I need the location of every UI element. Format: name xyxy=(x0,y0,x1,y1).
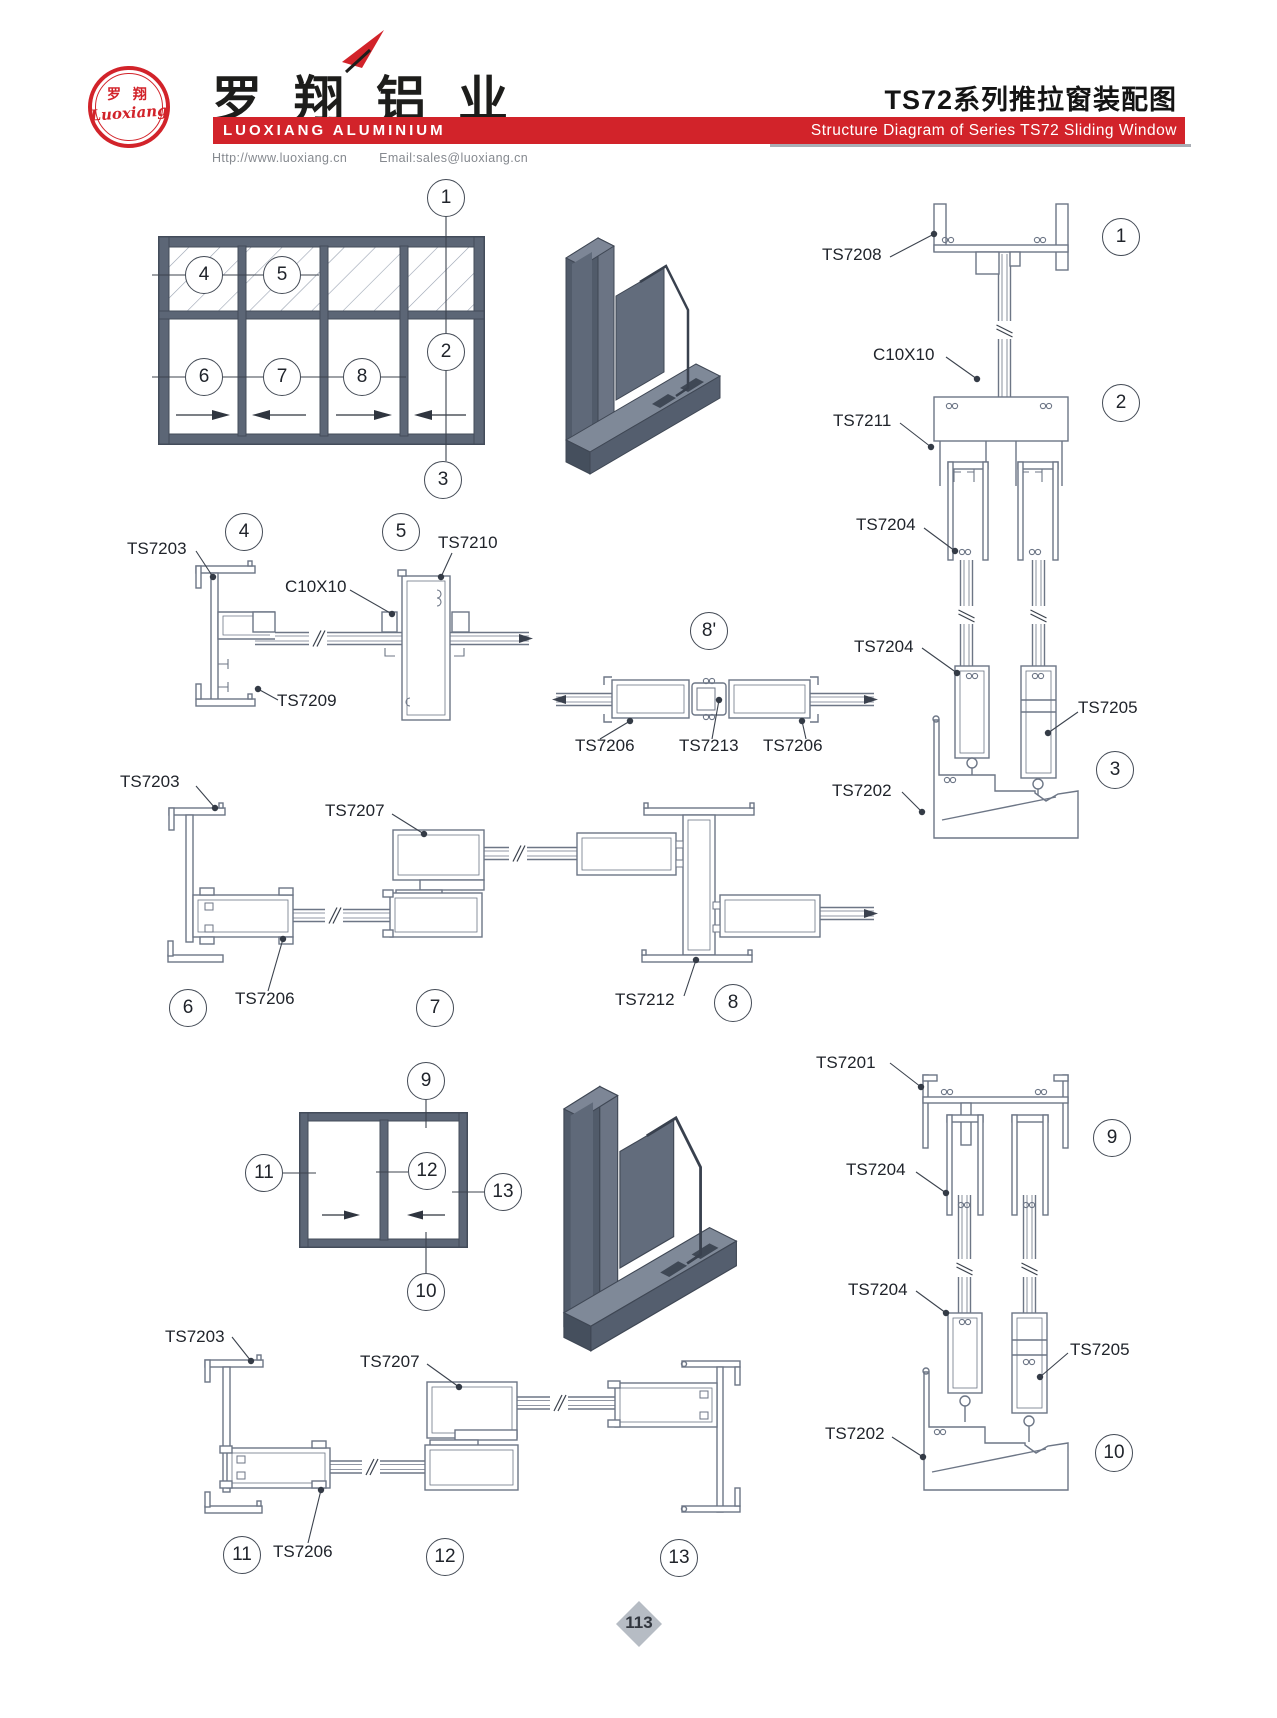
vertical-section-top-right xyxy=(933,204,1078,838)
part-label-TS7204: TS7204 xyxy=(846,1161,906,1179)
part-label-TS7206: TS7206 xyxy=(763,737,823,755)
part-label-TS7206: TS7206 xyxy=(273,1543,333,1561)
detail-6-7-8-drawing xyxy=(168,803,820,962)
profile-3d-render-bottom xyxy=(564,1087,736,1351)
callout-11: 11 xyxy=(245,1154,283,1192)
callout-1: 1 xyxy=(427,179,465,217)
part-label-TS7203: TS7203 xyxy=(127,540,187,558)
callout-12: 12 xyxy=(426,1538,464,1576)
page-number: 113 xyxy=(616,1613,662,1633)
callout-12: 12 xyxy=(408,1152,446,1190)
callout-8: 8 xyxy=(714,984,752,1022)
callout-9: 9 xyxy=(1093,1119,1131,1157)
callout-10: 10 xyxy=(407,1273,445,1311)
part-label-TS7206: TS7206 xyxy=(235,990,295,1008)
callout-7: 7 xyxy=(263,358,301,396)
callout-8: 8 xyxy=(343,358,381,396)
part-label-TS7203: TS7203 xyxy=(165,1328,225,1346)
catalog-page: 罗 翔 Luoxiang 罗翔铝业 LUOXIANG ALUMINIUM Str… xyxy=(0,0,1277,1718)
callout-6: 6 xyxy=(169,989,207,1027)
callout-5: 5 xyxy=(382,513,420,551)
part-label-TS7204: TS7204 xyxy=(856,516,916,534)
callout-11: 11 xyxy=(223,1536,261,1574)
vertical-section-bottom-right xyxy=(923,1075,1068,1490)
part-label-TS7212: TS7212 xyxy=(615,991,675,1009)
part-label-TS7211: TS7211 xyxy=(833,412,891,430)
callout-2: 2 xyxy=(1102,384,1140,422)
profile-3d-render-top xyxy=(566,238,720,474)
detail-8prime-drawing xyxy=(604,677,818,722)
part-label-TS7207: TS7207 xyxy=(360,1353,420,1371)
part-label-TS7205: TS7205 xyxy=(1070,1341,1130,1359)
callout-13: 13 xyxy=(484,1173,522,1211)
callout-3: 3 xyxy=(1096,751,1134,789)
callout-7: 7 xyxy=(416,989,454,1027)
part-label-TS7205: TS7205 xyxy=(1078,699,1138,717)
detail-11-12-13-drawing xyxy=(205,1355,740,1513)
callout-3: 3 xyxy=(424,461,462,499)
part-label-C10X10: C10X10 xyxy=(285,578,346,596)
callout-5: 5 xyxy=(263,256,301,294)
part-label-TS7204: TS7204 xyxy=(848,1281,908,1299)
part-label-TS7201: TS7201 xyxy=(816,1054,876,1072)
part-label-TS7209: TS7209 xyxy=(277,692,337,710)
callout-4: 4 xyxy=(225,513,263,551)
part-label-TS7213: TS7213 xyxy=(679,737,739,755)
part-label-TS7202: TS7202 xyxy=(832,782,892,800)
callout-6: 6 xyxy=(185,358,223,396)
callout-9: 9 xyxy=(407,1062,445,1100)
callout-2: 2 xyxy=(427,333,465,371)
part-label-TS7210: TS7210 xyxy=(438,534,498,552)
part-label-TS7207: TS7207 xyxy=(325,802,385,820)
part-label-TS7204: TS7204 xyxy=(854,638,914,656)
part-label-TS7208: TS7208 xyxy=(822,246,882,264)
technical-drawing-svg xyxy=(0,0,1277,1718)
callout-4: 4 xyxy=(185,256,223,294)
callout-8': 8' xyxy=(690,612,728,650)
part-label-TS7202: TS7202 xyxy=(825,1425,885,1443)
callout-1: 1 xyxy=(1102,218,1140,256)
part-label-TS7206: TS7206 xyxy=(575,737,635,755)
callout-10: 10 xyxy=(1095,1434,1133,1472)
callout-13: 13 xyxy=(660,1539,698,1577)
part-label-TS7203: TS7203 xyxy=(120,773,180,791)
part-label-C10X10: C10X10 xyxy=(873,346,934,364)
